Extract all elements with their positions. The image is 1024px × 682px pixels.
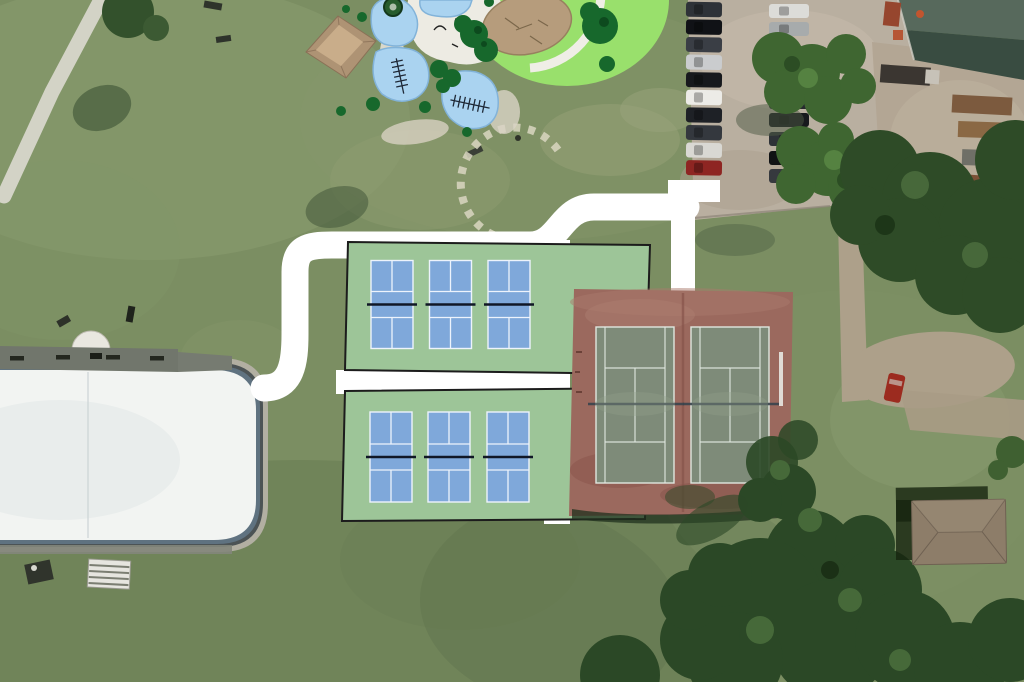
pickleball-court [484, 261, 534, 349]
proposed-path-parking-connector [668, 180, 720, 202]
pickleball-court [367, 261, 417, 349]
pickleball-court [426, 261, 476, 349]
pickleball-court [366, 412, 416, 502]
map-canvas [0, 0, 1024, 682]
parked-car [686, 160, 722, 176]
rust-container [893, 30, 903, 40]
tree [143, 15, 169, 41]
bush [988, 460, 1008, 480]
parked-car [686, 19, 722, 35]
parked-car [769, 4, 809, 18]
parked-car [686, 54, 722, 70]
rust-container [883, 1, 901, 27]
aerial-site-plan [0, 0, 1024, 682]
parked-car [686, 2, 722, 18]
parked-car [686, 125, 722, 141]
tree-shadow [695, 224, 775, 256]
post [515, 135, 521, 141]
parked-car [686, 72, 722, 88]
parked-car [686, 142, 722, 158]
parked-car [686, 107, 722, 123]
parked-car [686, 90, 722, 106]
pickleball-court [424, 412, 474, 502]
plan-spinner [384, 0, 402, 16]
pickleball-courts-north [367, 261, 534, 349]
pickleball-courts-south [366, 412, 533, 502]
parked-car [686, 37, 722, 53]
tennis-side-bench [779, 352, 783, 406]
bleachers [87, 559, 130, 589]
rink-south-apron [0, 545, 232, 554]
pickleball-court [483, 412, 533, 502]
plan-pond [373, 48, 429, 102]
